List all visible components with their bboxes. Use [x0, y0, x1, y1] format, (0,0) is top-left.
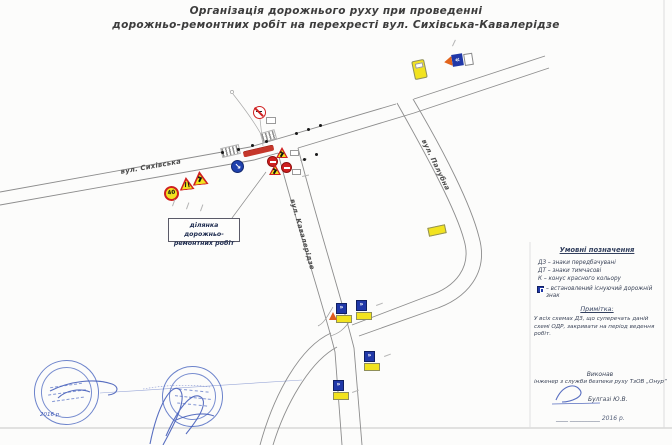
sign-post	[315, 153, 318, 156]
title-line-2: дорожньо-ремонтних робіт на перехресті в…	[56, 18, 616, 32]
sign-post	[251, 144, 254, 147]
chevron-panel-icon	[451, 53, 464, 67]
mandatory-direction-sign	[231, 160, 244, 173]
road-works-sign	[276, 147, 288, 158]
executed-by-label: Виконав	[540, 371, 660, 378]
legend-item: ДЗ – знаки передбачувані	[538, 260, 616, 266]
yellow-backing-plate	[333, 392, 349, 400]
no-turn-sign	[253, 106, 266, 119]
detour-sign-assembly	[356, 300, 372, 320]
legend-item: К – конус красного кольору	[538, 276, 621, 282]
sign-post	[303, 158, 306, 161]
detour-direction-sign	[333, 380, 344, 391]
road-works-sign	[269, 164, 281, 175]
legend-item: – встановлений існуючий дорожній знак	[546, 286, 662, 300]
sign-post	[265, 140, 268, 143]
sign-post	[295, 132, 298, 135]
detour-direction-sign	[364, 351, 375, 362]
sign-post	[237, 148, 240, 151]
work-zone-line-1: ділянка дорожньо-	[169, 221, 239, 239]
detour-sign-assembly	[333, 380, 349, 400]
road-works-sign	[191, 170, 208, 186]
sign-post	[307, 128, 310, 131]
yellow-backing-plate	[364, 363, 380, 371]
no-entry-sign	[281, 162, 292, 173]
sign-plate	[292, 169, 301, 175]
legend-heading: Умовні позначення	[532, 246, 662, 254]
sign-post	[221, 151, 224, 154]
speed-limit-value: 40	[167, 190, 175, 197]
note-text: У всіх схемах ДЗ, що суперечать даній сх…	[534, 316, 662, 339]
detour-sign-assembly	[336, 303, 352, 323]
yellow-backing-plate	[336, 315, 352, 323]
sign-post	[319, 124, 322, 127]
date-line: ____ __________ 2016 р.	[556, 415, 625, 422]
sign-plate	[266, 117, 276, 124]
yellow-backing-plate	[356, 312, 372, 320]
work-zone-line-2: ремонтних робіт	[169, 239, 239, 248]
sign-plate	[290, 150, 299, 156]
executor-role: інженер з служби безпеки руху ТзОВ „Онур…	[534, 379, 666, 385]
executor-name: Булгазі Ю.В.	[588, 396, 628, 403]
existing-road-sign-icon	[537, 286, 544, 293]
truck-cab	[463, 53, 474, 66]
detour-direction-sign	[336, 303, 347, 314]
title-line-1: Організація дорожнього руху при проведен…	[56, 4, 616, 18]
detour-sign-assembly	[364, 351, 380, 371]
traffic-scheme-sheet: Організація дорожнього руху при проведен…	[0, 0, 672, 445]
scheme-title: Організація дорожнього руху при проведен…	[56, 4, 616, 32]
detour-direction-sign	[356, 300, 367, 311]
stamp-date: 2016 р.	[40, 412, 61, 418]
note-heading: Примітка:	[532, 305, 662, 313]
signature-strokes	[50, 380, 600, 445]
narrow-road-glyph	[185, 182, 187, 187]
work-zone-label: ділянка дорожньо- ремонтних робіт	[168, 218, 240, 242]
legend-item: ДТ – знаки тимчасові	[538, 268, 601, 274]
